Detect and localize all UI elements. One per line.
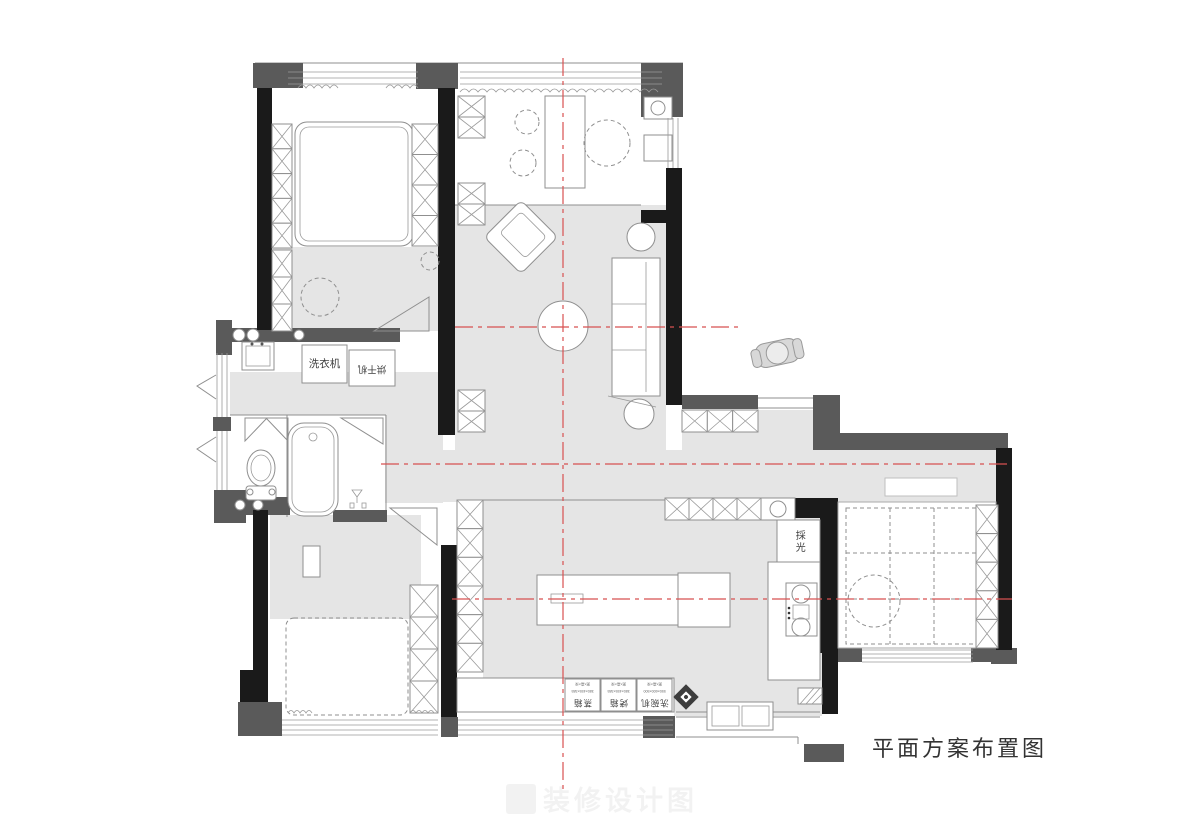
appliance-size: 380×455×385	[571, 690, 593, 695]
appliance-size: 380×455×385	[607, 690, 629, 695]
bed-2	[286, 618, 408, 715]
floor-dressing-area	[272, 247, 438, 331]
floor-bath-front	[385, 415, 443, 503]
appliance-name: 洗碗机	[640, 697, 669, 709]
tatami-room	[838, 502, 996, 648]
bath-door	[341, 418, 383, 444]
bath-shelf	[333, 510, 387, 522]
shower-fixture	[352, 490, 362, 503]
entry-mat	[885, 478, 957, 496]
study-chair	[510, 150, 536, 176]
label-dishwasher: 洗碗机 550×600×500 宽×高×深	[637, 679, 672, 711]
curtain-study	[460, 89, 658, 92]
curtain-bedroom1	[298, 85, 338, 88]
bedroom2-desk	[303, 546, 320, 577]
study-cabinet	[644, 97, 672, 119]
appliance-name: 烤箱	[609, 697, 628, 709]
plan-title: 平面方案布置图	[872, 731, 1062, 763]
bed-main	[295, 122, 413, 246]
appliance-note: 宽×高×深	[647, 681, 662, 686]
appliance-size: 550×600×500	[643, 690, 665, 695]
floor-bedroom2-entry	[270, 515, 421, 619]
watermark: 装修设计图	[506, 779, 698, 818]
curtain-bedroom1	[386, 85, 418, 88]
study-chair-large	[584, 120, 630, 166]
appliance-name: 蒸箱	[573, 697, 592, 709]
side-table	[627, 223, 655, 251]
bathtub	[288, 423, 338, 516]
label-oven: 烤箱 380×455×385 宽×高×深	[601, 679, 636, 711]
label-washing-machine: 洗衣机	[302, 345, 347, 383]
label-steam-oven: 蒸箱 380×455×385 宽×高×深	[565, 679, 600, 711]
appliance-note: 宽×高×深	[575, 681, 590, 686]
floor-plan-drawing	[0, 0, 1200, 838]
label-dryer: 烘干机	[349, 350, 395, 386]
curtain-bedroom2	[288, 711, 312, 714]
study-room	[510, 96, 672, 188]
study-chair	[515, 110, 539, 134]
stove	[786, 583, 817, 636]
kitchen-island	[537, 575, 678, 625]
floor-plan-canvas: 洗衣机 烘干机 採光 蒸箱 380×455×385 宽×高×深 烤箱 380×4…	[0, 0, 1200, 838]
bath-door-leaf	[245, 418, 267, 441]
study-desk	[545, 96, 585, 188]
tatami-floor	[838, 502, 996, 648]
appliance-note: 宽×高×深	[611, 681, 626, 686]
island-cabinet	[678, 573, 730, 627]
bath-door-leaf	[266, 418, 288, 441]
watermark-logo	[506, 784, 536, 814]
scooter-figure	[749, 336, 805, 370]
label-skylight: 採光	[777, 520, 820, 563]
watermark-text: 装修设计图	[543, 779, 698, 818]
